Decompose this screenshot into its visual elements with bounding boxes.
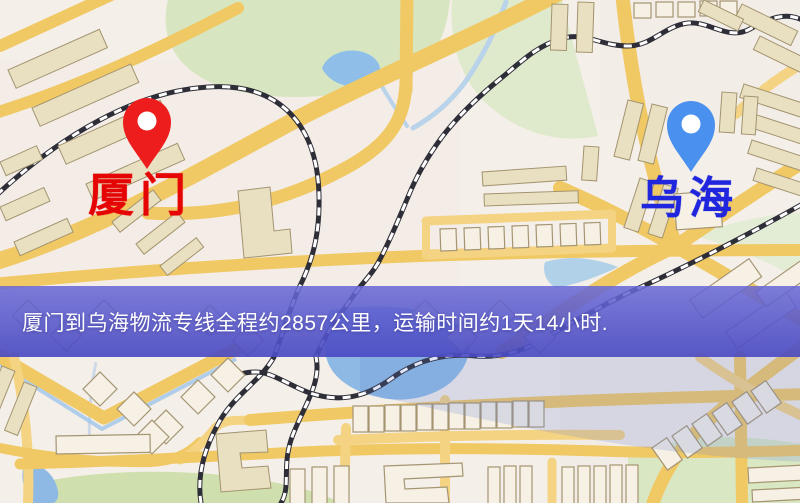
map-canvas bbox=[0, 0, 800, 503]
origin-label: 厦门 bbox=[88, 172, 192, 218]
logistics-route-map: 厦门到乌海物流专线全程约2857公里，运输时间约1天14小时. 厦门 乌海 bbox=[0, 0, 800, 503]
route-info-banner: 厦门到乌海物流专线全程约2857公里，运输时间约1天14小时. bbox=[0, 286, 800, 357]
destination-label: 乌海 bbox=[640, 177, 738, 221]
route-info-text: 厦门到乌海物流专线全程约2857公里，运输时间约1天14小时. bbox=[22, 307, 608, 337]
destination-pin-icon[interactable] bbox=[661, 98, 721, 178]
origin-pin-icon[interactable] bbox=[117, 95, 177, 175]
